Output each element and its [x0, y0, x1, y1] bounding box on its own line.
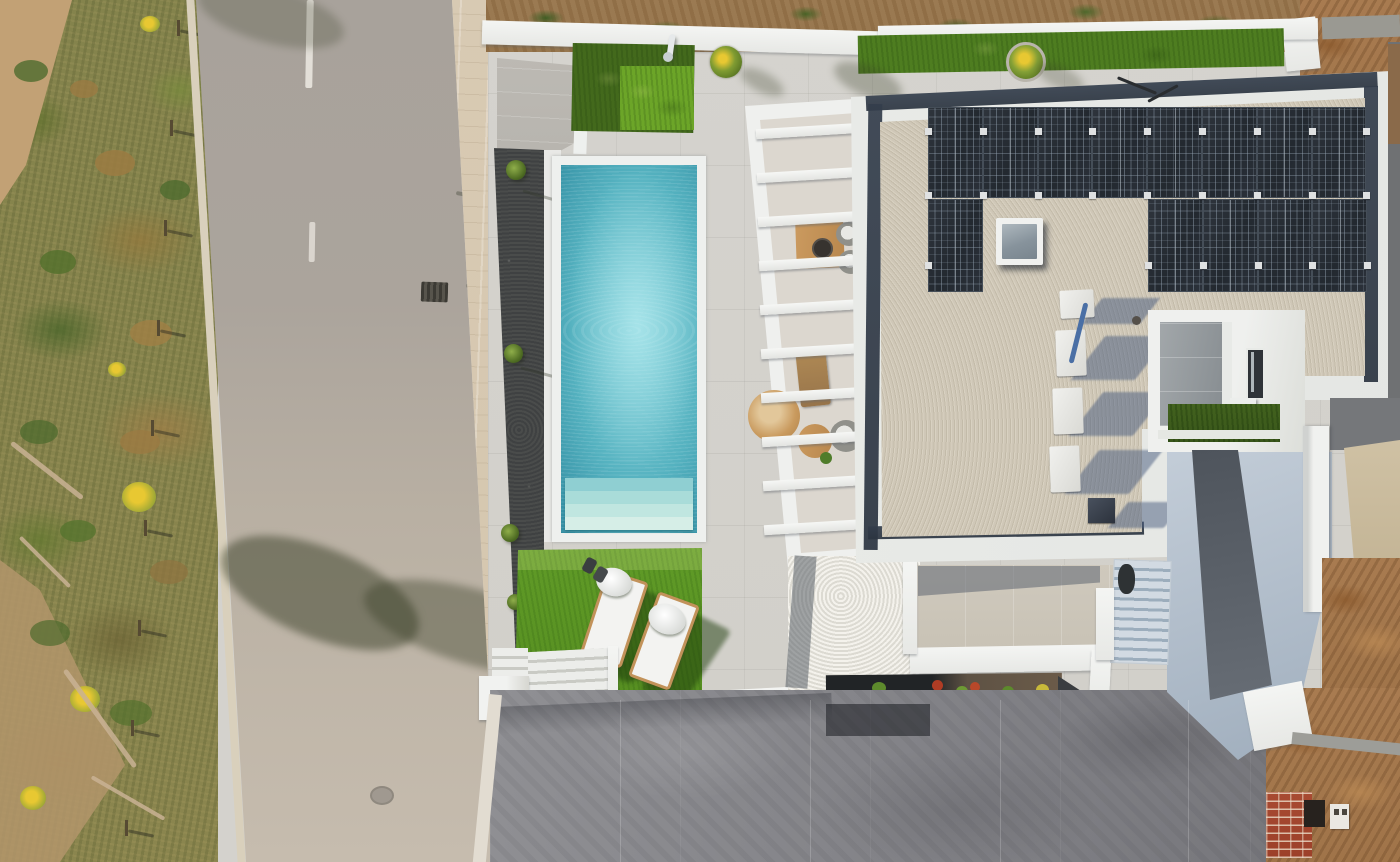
vegetation-clump: [95, 150, 135, 176]
fence-post: [170, 120, 173, 136]
garden-grass-strip: [858, 28, 1285, 73]
courtyard-window: [1246, 348, 1265, 400]
driveway-joint: [1188, 700, 1189, 862]
shrub: [504, 344, 523, 363]
fence-post: [151, 420, 154, 436]
hvac-unit: [1052, 387, 1084, 434]
panel-mount-clip: [1144, 128, 1151, 135]
solar-panel: [1038, 107, 1093, 198]
vegetation-clump: [14, 60, 48, 82]
panel-mount-clip: [925, 192, 932, 199]
fence-post: [144, 520, 147, 536]
storm-drain: [421, 282, 449, 303]
vegetation-clump: [70, 80, 98, 98]
pool-steps: [561, 478, 697, 533]
pool-step: [565, 517, 693, 530]
panel-mount-clip: [1035, 192, 1042, 199]
skylight: [996, 218, 1043, 265]
panel-mount-clip: [1254, 192, 1261, 199]
yellow-flower-clump: [122, 482, 156, 512]
panel-mount-clip: [1035, 128, 1042, 135]
solar-panel: [1092, 107, 1147, 198]
panel-mount-clip: [1254, 128, 1261, 135]
panel-mount-clip: [1309, 262, 1316, 269]
yellow-flower-clump: [108, 362, 126, 377]
panel-mount-clip: [1363, 192, 1370, 199]
solar-panel: [1258, 199, 1313, 292]
meter-slot: [1342, 809, 1347, 815]
vegetation-clump: [120, 430, 160, 454]
window-reflection: [1251, 352, 1254, 392]
meter-slot: [1334, 809, 1339, 815]
brick-wall-opening: [1304, 800, 1325, 827]
panel-mount-clip: [925, 128, 932, 135]
hvac-unit-dark: [1088, 498, 1115, 523]
aerial-villa-scene: [0, 0, 1400, 862]
potted-plant-small: [820, 452, 832, 464]
neighbor-dirt-column: [1322, 558, 1400, 698]
panel-mount-clip: [1309, 128, 1316, 135]
panel-mount-clip: [980, 192, 987, 199]
stair-side-white: [1096, 588, 1114, 660]
vegetation-clump: [60, 520, 96, 542]
terrace-front-wall: [910, 644, 1110, 673]
yellow-flower-clump: [20, 786, 46, 810]
solar-panel: [1148, 199, 1203, 292]
solar-panel: [983, 107, 1038, 198]
panel-mount-clip: [1144, 192, 1151, 199]
vegetation-clump: [150, 560, 188, 584]
panel-mount-clip: [1145, 262, 1152, 269]
artificial-grass-upper-bright: [620, 66, 694, 130]
pool-step: [565, 478, 693, 491]
utility-box: [1059, 289, 1094, 319]
potted-plant: [710, 46, 742, 78]
vegetation-clump: [30, 620, 70, 646]
fence-post: [177, 20, 180, 36]
fence-post: [138, 620, 141, 636]
panel-mount-clip: [1363, 128, 1370, 135]
solar-panel: [1257, 107, 1312, 198]
shower-head: [663, 52, 673, 62]
vegetation-clump: [160, 180, 190, 200]
driveway-joint: [1000, 700, 1001, 862]
solar-panel: [1203, 199, 1258, 292]
neighbor-dirt-east: [1388, 44, 1400, 144]
panel-mount-clip: [1089, 128, 1096, 135]
lane-marking-dash: [309, 222, 316, 262]
shrub: [506, 160, 526, 180]
solar-panel: [1202, 107, 1257, 198]
vegetation-clump: [20, 420, 58, 444]
courtyard-step-edge: [1158, 430, 1280, 439]
panel-mount-clip: [1200, 262, 1207, 269]
panel-mount-clip: [1199, 128, 1206, 135]
solar-panel: [1312, 107, 1367, 198]
solar-panel: [1147, 107, 1202, 198]
fence-post: [131, 720, 134, 736]
utility-meter-box: [1330, 804, 1349, 829]
solar-panel: [928, 199, 983, 292]
pool-step: [565, 504, 693, 517]
panel-mount-clip: [1364, 262, 1371, 269]
skylight-glass: [1002, 224, 1037, 259]
garage-door-shadow: [826, 704, 930, 736]
panel-mount-clip: [1199, 192, 1206, 199]
panel-mount-clip: [925, 262, 932, 269]
panel-mount-clip: [1309, 192, 1316, 199]
pool-step: [565, 491, 693, 504]
hvac-unit: [1049, 445, 1081, 492]
fence-post: [164, 220, 167, 236]
solar-panel: [1312, 199, 1367, 292]
fence-post: [157, 320, 160, 336]
panel-mount-clip: [1089, 192, 1096, 199]
panel-mount-clip: [980, 128, 987, 135]
driveway-joint: [810, 700, 811, 862]
vegetation-clump: [40, 250, 76, 274]
fence-post: [125, 820, 128, 836]
solar-panel: [928, 107, 983, 198]
manhole-cover: [370, 786, 394, 805]
retaining-wall: [1322, 15, 1400, 40]
panel-mount-clip: [1255, 262, 1262, 269]
terrace-side-wall: [903, 560, 917, 654]
roof-vent: [1132, 316, 1141, 325]
shrub: [501, 524, 519, 542]
yellow-flower-clump: [140, 16, 160, 32]
driveway-joint: [620, 700, 621, 862]
stair-planter-pot: [1118, 564, 1135, 594]
